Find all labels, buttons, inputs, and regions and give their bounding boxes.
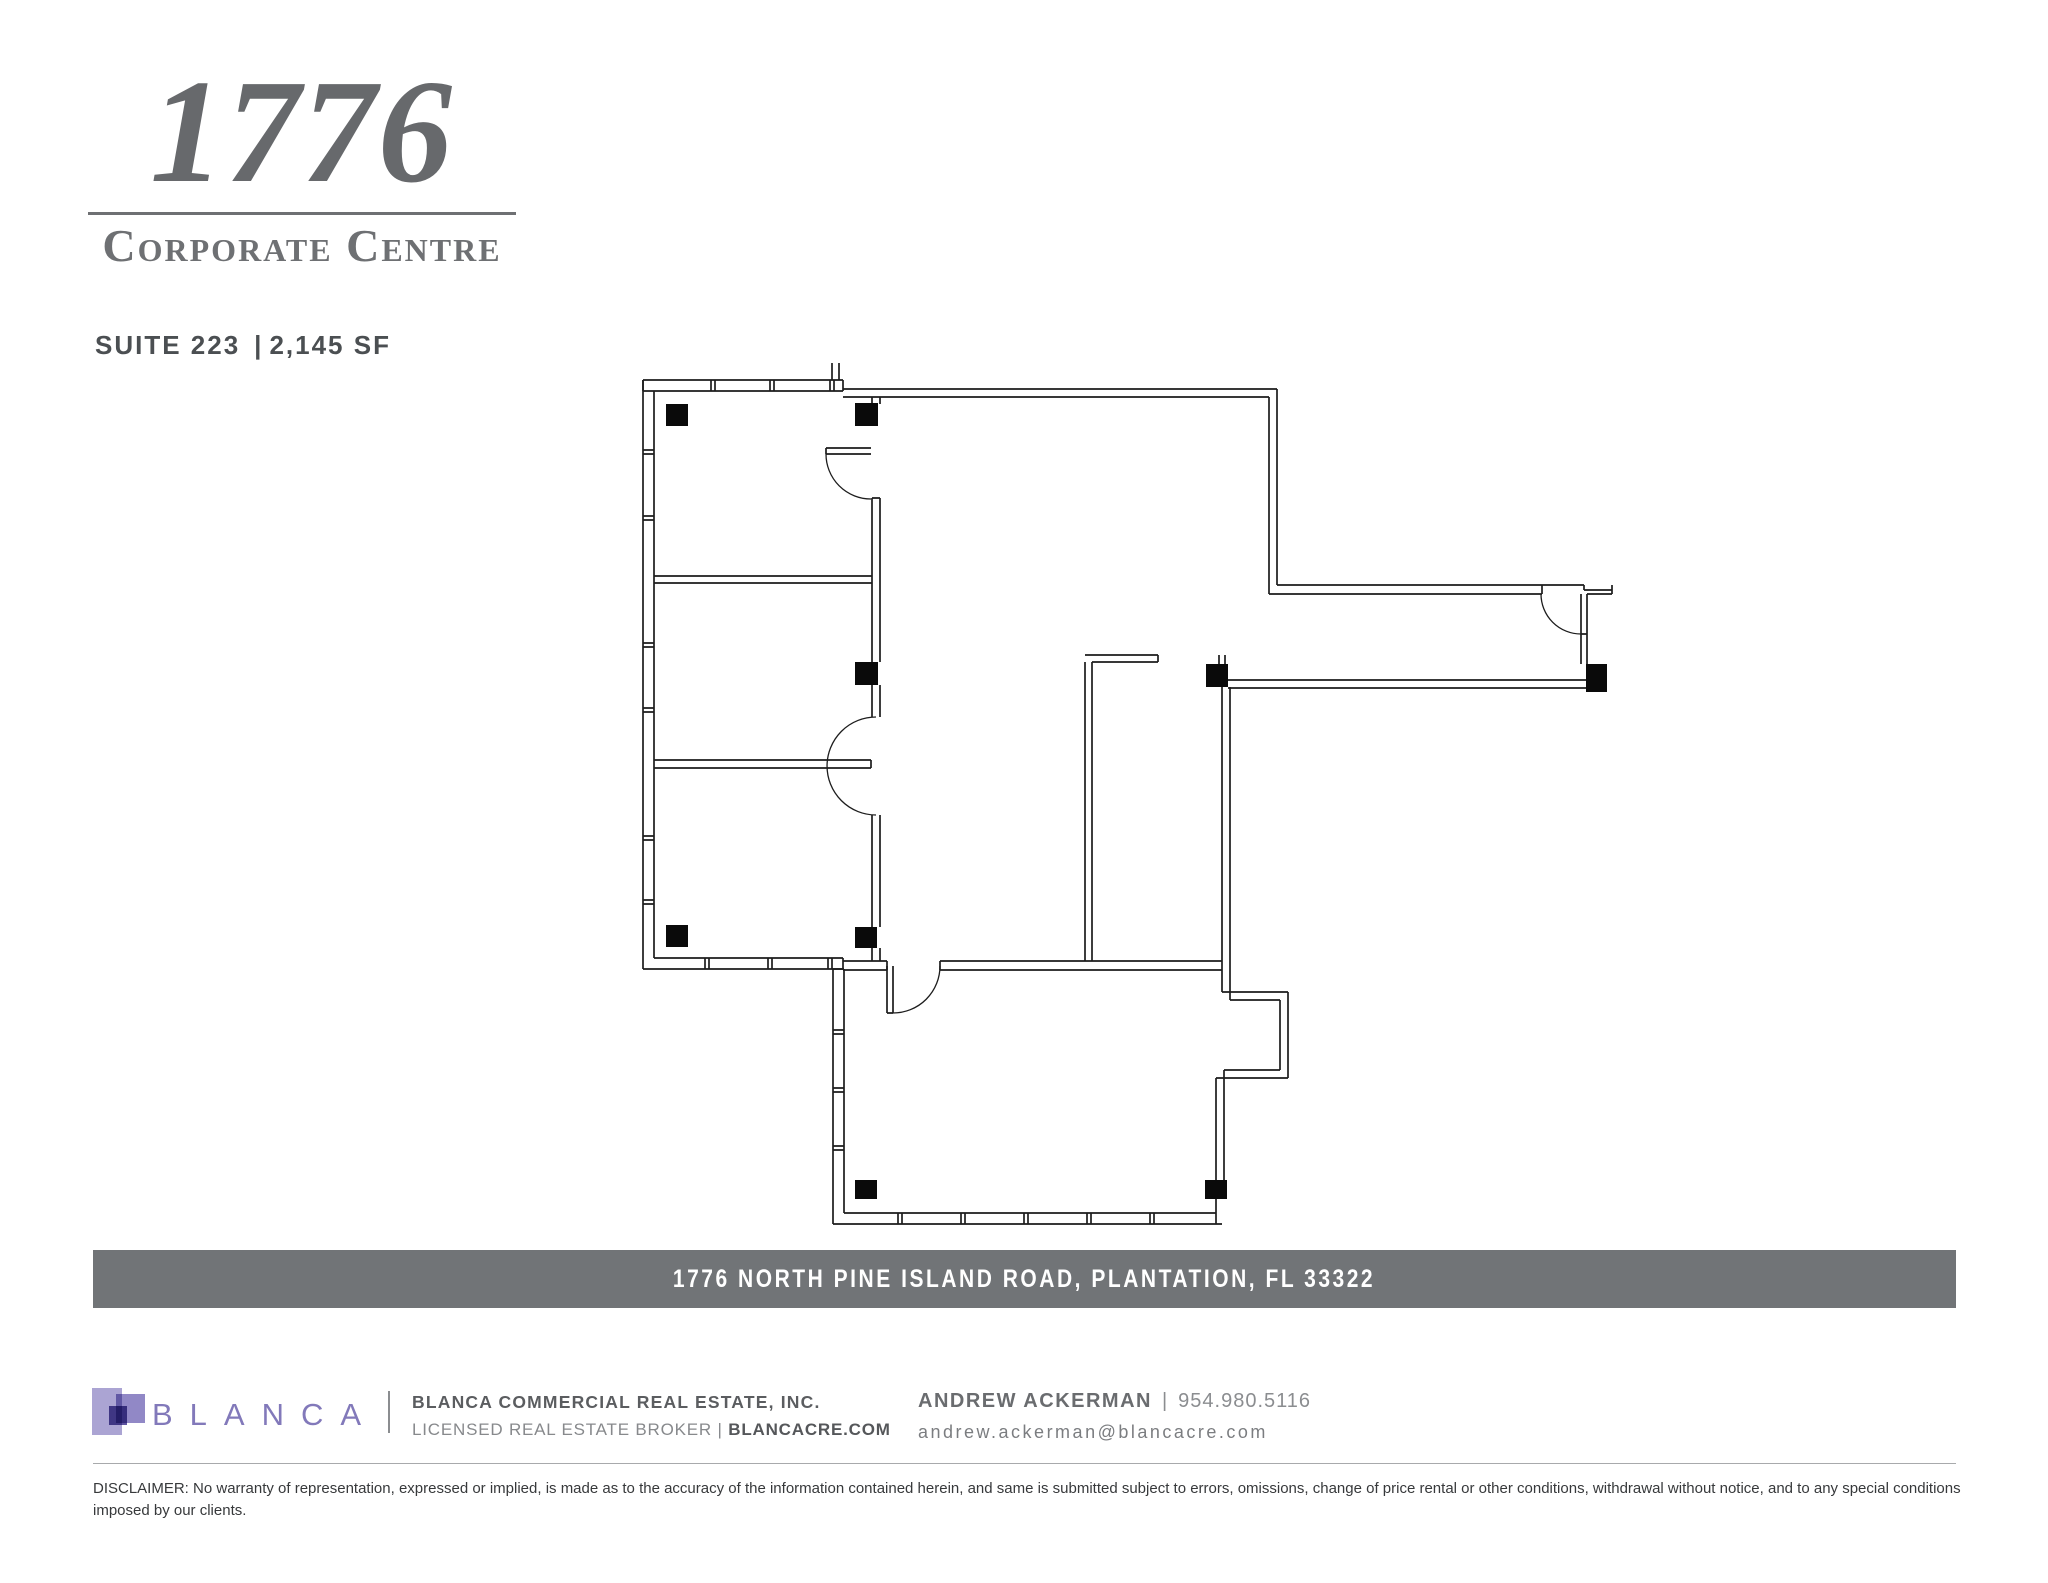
floor-plan [620, 350, 1650, 1250]
suite-separator: | [240, 330, 269, 360]
suite-label: SUITE 223 [95, 330, 240, 360]
door-arc-corridor [1541, 594, 1581, 634]
column [666, 404, 688, 426]
column [855, 662, 878, 685]
agent-name: ANDREW ACKERMAN [918, 1390, 1152, 1412]
wall-office1-office2 [654, 576, 872, 583]
column [1586, 664, 1607, 692]
company-name: BLANCA COMMERCIAL REAL ESTATE, INC. [412, 1392, 891, 1413]
floor-plan-walls [643, 363, 1612, 1224]
building-name: Corporate Centre [88, 219, 516, 272]
footer-horizontal-rule [93, 1463, 1956, 1464]
window-wall-office3-bottom [643, 958, 843, 969]
column [666, 925, 688, 947]
agent-phone: 954.980.5116 [1178, 1390, 1311, 1412]
logo-square-dark [109, 1406, 127, 1425]
company-info: BLANCA COMMERCIAL REAL ESTATE, INC. LICE… [412, 1392, 891, 1440]
wall-right-vertical [1222, 687, 1230, 1000]
suite-info: SUITE 223|2,145 SF [95, 330, 391, 361]
door-leaf-entry [826, 448, 871, 454]
address-bar: 1776 NORTH PINE ISLAND ROAD, PLANTATION,… [93, 1250, 1956, 1308]
door-arc-offices [827, 717, 876, 815]
window-wall-left [643, 380, 654, 969]
door-arc-entry [826, 454, 871, 499]
wall-top [843, 389, 1277, 397]
door-leaf-corridor [1581, 594, 1587, 664]
footer-vertical-divider [388, 1391, 390, 1433]
agent-separator: | [1152, 1390, 1178, 1412]
window-wall-bottom [833, 1213, 1222, 1224]
column [855, 403, 878, 426]
blanca-logo-text: BLANCA [152, 1397, 378, 1433]
column [855, 927, 877, 948]
license-separator: | [718, 1420, 723, 1439]
window-wall-top-left [643, 363, 843, 391]
disclaimer-text: DISCLAIMER: No warranty of representatio… [93, 1478, 1965, 1522]
building-logo: 1776 Corporate Centre [88, 58, 516, 272]
door-arc-bottom-room [893, 966, 940, 1013]
wall-corridor-top [1269, 585, 1612, 594]
column [1206, 664, 1228, 687]
company-website: BLANCACRE.COM [728, 1420, 890, 1439]
agent-email: andrew.ackerman@blancacre.com [918, 1422, 1311, 1443]
column [1205, 1180, 1227, 1199]
column [855, 1180, 877, 1199]
agent-contact-line: ANDREW ACKERMAN|954.980.5116 [918, 1390, 1311, 1413]
agent-info: ANDREW ACKERMAN|954.980.5116 andrew.acke… [918, 1390, 1311, 1443]
door-swing-arcs [826, 454, 1581, 1013]
building-number: 1776 [88, 58, 516, 206]
license-label: LICENSED REAL ESTATE BROKER [412, 1420, 712, 1439]
wall-middle-partition [1085, 655, 1158, 961]
wall-open-area-bottom [843, 961, 1222, 970]
door-leaf-bottom-room [887, 966, 893, 1013]
suite-size: 2,145 SF [269, 330, 391, 360]
address-text: 1776 NORTH PINE ISLAND ROAD, PLANTATION,… [673, 1265, 1375, 1294]
wall-upper-right-vertical [1269, 389, 1277, 594]
structural-columns [666, 403, 1607, 1199]
company-license-line: LICENSED REAL ESTATE BROKER | BLANCACRE.… [412, 1420, 891, 1440]
blanca-logo-icon [92, 1388, 152, 1438]
window-wall-bottom-room-left [833, 969, 844, 1224]
wall-alcove-notch [1216, 992, 1288, 1213]
wall-office2-office3 [654, 760, 871, 768]
wall-corridor-bottom [1219, 655, 1586, 688]
